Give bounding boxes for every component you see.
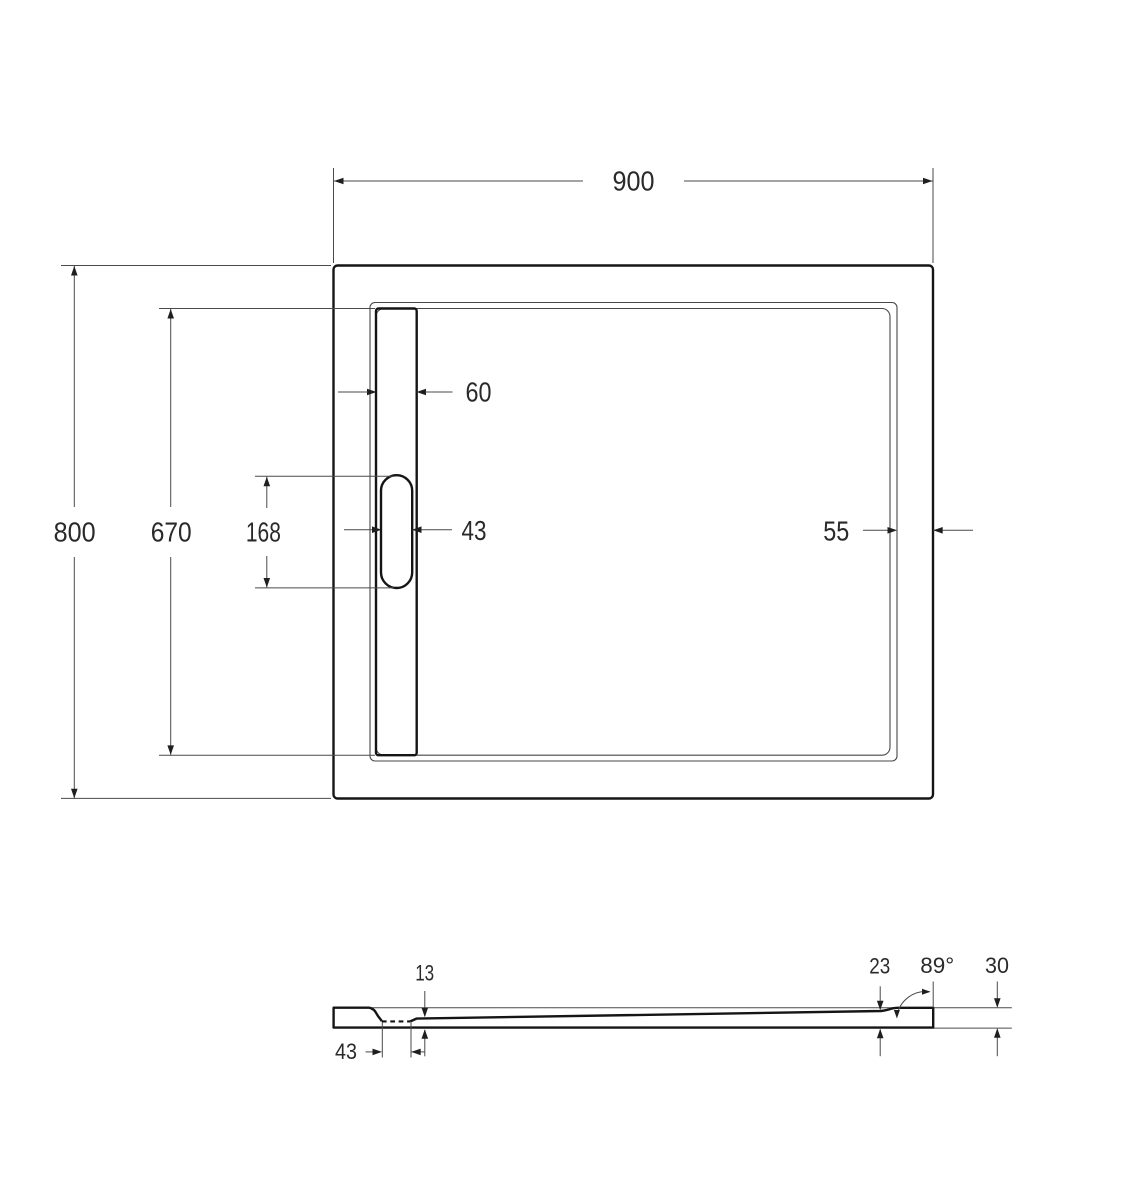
svg-text:60: 60 — [466, 376, 492, 407]
svg-text:43: 43 — [335, 1039, 357, 1064]
svg-text:800: 800 — [54, 517, 96, 548]
svg-text:55: 55 — [823, 515, 849, 546]
svg-text:30: 30 — [985, 953, 1009, 978]
svg-text:23: 23 — [869, 954, 890, 979]
svg-text:13: 13 — [415, 960, 434, 985]
svg-text:89°: 89° — [920, 953, 954, 978]
svg-text:900: 900 — [613, 165, 655, 196]
svg-text:43: 43 — [462, 515, 487, 546]
svg-text:168: 168 — [246, 517, 281, 548]
svg-text:670: 670 — [151, 517, 192, 548]
